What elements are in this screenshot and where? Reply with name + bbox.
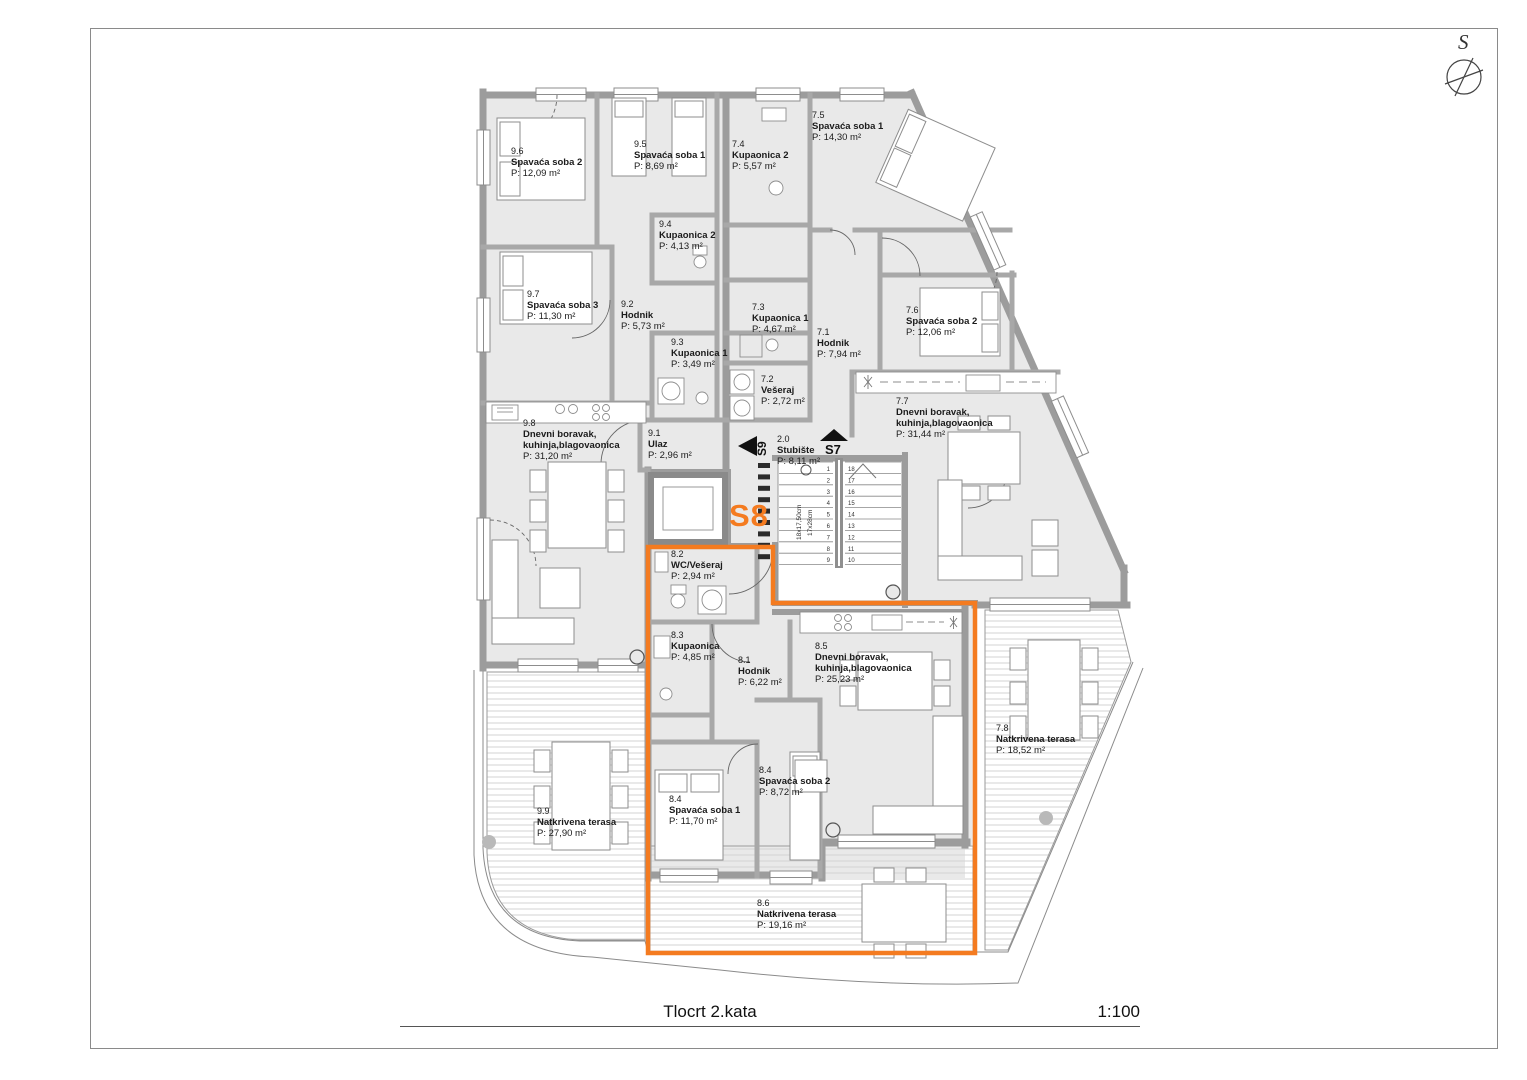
room-label-9-8: 9.8Dnevni boravak,kuhinja,blagovaonicaP:…	[523, 418, 620, 462]
north-letter: S	[1458, 30, 1469, 55]
unit-s8-label[interactable]: S8	[729, 498, 769, 534]
room-label-9-4: 9.4Kupaonica 2P: 4,13 m²	[659, 219, 716, 252]
room-label-7-6: 7.6Spavaća soba 2P: 12,06 m²	[906, 305, 977, 338]
room-label-9-6: 9.6Spavaća soba 2P: 12,09 m²	[511, 146, 582, 179]
room-label-7-7: 7.7Dnevni boravak,kuhinja,blagovaonicaP:…	[896, 396, 993, 440]
room-label-9-1: 9.1UlazP: 2,96 m²	[648, 428, 692, 461]
room-label-7-4: 7.4Kupaonica 2P: 5,57 m²	[732, 139, 789, 172]
room-label-9-9: 9.9Natkrivena terasaP: 27,90 m²	[537, 806, 616, 839]
room-label-7-2: 7.2VešerajP: 2,72 m²	[761, 374, 805, 407]
room-label-9-5: 9.5Spavaća soba 1P: 8,69 m²	[634, 139, 705, 172]
sheet-scale: 1:100	[1020, 1002, 1140, 1022]
sheet-title: Tlocrt 2.kata	[400, 1002, 1020, 1022]
room-label-7-1: 7.1HodnikP: 7,94 m²	[817, 327, 861, 360]
room-label-8-3: 8.3KupaonicaP: 4,85 m²	[671, 630, 720, 663]
room-label-9-3: 9.3Kupaonica 1P: 3,49 m²	[671, 337, 728, 370]
room-label-8-4: 8.4Spavaća soba 1P: 11,70 m²	[669, 794, 740, 827]
title-block: Tlocrt 2.kata 1:100	[400, 1002, 1140, 1027]
room-label-2-0: 2.0StubišteP: 8,11 m²	[777, 434, 820, 467]
room-label-8-1: 8.1HodnikP: 6,22 m²	[738, 655, 782, 688]
room-label-9-2: 9.2HodnikP: 5,73 m²	[621, 299, 665, 332]
floorplan-page: { "page": { "title": "Tlocrt 2.kata", "s…	[0, 0, 1527, 1080]
room-label-7-3: 7.3Kupaonica 1P: 4,67 m²	[752, 302, 809, 335]
room-labels-layer: 9.6Spavaća soba 2P: 12,09 m²9.5Spavaća s…	[0, 0, 1527, 1080]
room-label-8-4: 8.4Spavaća soba 2P: 8,72 m²	[759, 765, 830, 798]
room-label-9-7: 9.7Spavaća soba 3P: 11,30 m²	[527, 289, 598, 322]
room-label-7-5: 7.5Spavaća soba 1P: 14,30 m²	[812, 110, 883, 143]
room-label-8-6: 8.6Natkrivena terasaP: 19,16 m²	[757, 898, 836, 931]
room-label-8-2: 8.2WC/VešerajP: 2,94 m²	[671, 549, 723, 582]
room-label-7-8: 7.8Natkrivena terasaP: 18,52 m²	[996, 723, 1075, 756]
room-label-8-5: 8.5Dnevni boravak,kuhinja,blagovaonicaP:…	[815, 641, 912, 685]
